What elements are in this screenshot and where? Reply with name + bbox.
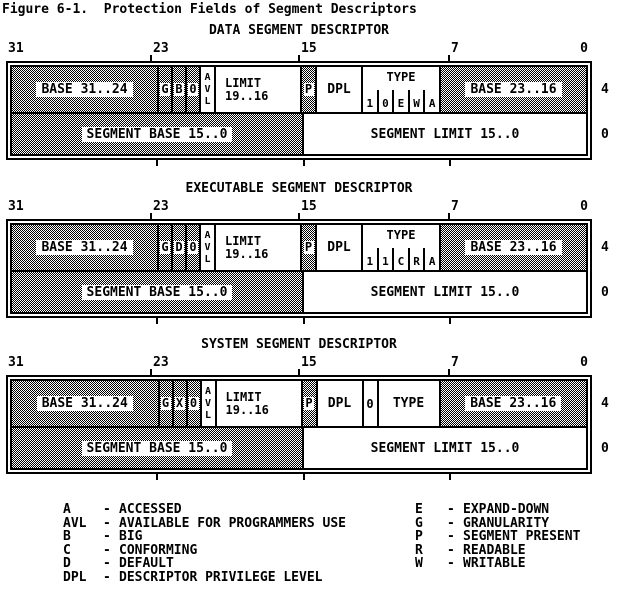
bit-ruler: 31 23 15 7 0 — [6, 43, 592, 62]
descriptor-row-offset-0: SEGMENT BASE 15..0 SEGMENT LIMIT 15..0 — [12, 270, 586, 312]
box-tick — [303, 318, 305, 324]
field-g-bit: G — [158, 381, 172, 426]
descriptor-row-offset-4: BASE 31..24 G D 0 A V L LIMIT 19..16 P D… — [12, 225, 586, 270]
type-bit: 1 — [363, 242, 377, 270]
descriptor-table: BASE 31..24 G X 0 A V L LIMIT 19..16 P D… — [6, 375, 592, 474]
field-g-bit: G — [157, 67, 171, 112]
section-title: DATA SEGMENT DESCRIPTOR — [0, 23, 598, 38]
legend-item-d: D-DEFAULT — [63, 557, 346, 571]
bit-label-15: 15 — [301, 357, 317, 369]
type-bit: A — [423, 248, 439, 270]
field-limit-19-16: LIMIT 19..16 — [214, 225, 300, 270]
bit-label-0: 0 — [580, 357, 588, 369]
legend-column-right: E-EXPAND-DOWN G-GRANULARITY P-SEGMENT PR… — [415, 503, 580, 571]
field-b-bit: B — [171, 67, 185, 112]
field-segment-base-15-0: SEGMENT BASE 15..0 — [12, 272, 302, 312]
descriptor-row-offset-0: SEGMENT BASE 15..0 SEGMENT LIMIT 15..0 — [12, 426, 586, 468]
figure-title: Figure 6-1. Protection Fields of Segment… — [2, 2, 417, 17]
field-segment-base-15-0: SEGMENT BASE 15..0 — [12, 114, 302, 154]
bit-label-23: 23 — [153, 43, 169, 55]
type-bit: 1 — [363, 84, 377, 112]
field-dpl: DPL — [315, 67, 361, 112]
byte-offset-0: 0 — [601, 441, 609, 456]
box-tick — [449, 474, 451, 480]
field-segment-base-15-0: SEGMENT BASE 15..0 — [12, 428, 302, 468]
descriptor-table: BASE 31..24 G B 0 A V L LIMIT 19..16 P D… — [6, 61, 592, 160]
field-base-23-16: BASE 23..16 — [439, 225, 586, 270]
box-tick — [449, 318, 451, 324]
byte-offset-4: 4 — [601, 82, 609, 97]
legend-item-b: B-BIG — [63, 530, 346, 544]
bit-label-31: 31 — [8, 43, 24, 55]
field-type: TYPE — [377, 381, 439, 426]
field-d-bit: D — [171, 225, 185, 270]
descriptor-row-offset-0: SEGMENT BASE 15..0 SEGMENT LIMIT 15..0 — [12, 112, 586, 154]
field-segment-limit-15-0: SEGMENT LIMIT 15..0 — [302, 114, 586, 154]
field-type: TYPE 1 1 C R A — [361, 225, 439, 270]
legend-item-dpl: DPL-DESCRIPTOR PRIVILEGE LEVEL — [63, 571, 346, 585]
field-segment-limit-15-0: SEGMENT LIMIT 15..0 — [302, 428, 586, 468]
bit-ruler: 31 23 15 7 0 — [6, 357, 592, 376]
field-base-31-24: BASE 31..24 — [12, 67, 157, 112]
box-tick — [303, 474, 305, 480]
field-zero-bit: 0 — [185, 67, 199, 112]
bit-label-15: 15 — [301, 43, 317, 55]
field-dpl: DPL — [316, 381, 362, 426]
descriptor-table: BASE 31..24 G D 0 A V L LIMIT 19..16 P D… — [6, 219, 592, 318]
bit-label-0: 0 — [580, 43, 588, 55]
legend-item-a: A-ACCESSED — [63, 503, 346, 517]
bit-label-15: 15 — [301, 201, 317, 213]
bit-label-0: 0 — [580, 201, 588, 213]
field-zero-bit: 0 — [186, 381, 200, 426]
byte-offset-4: 4 — [601, 396, 609, 411]
box-tick — [156, 160, 158, 166]
field-base-23-16: BASE 23..16 — [439, 67, 586, 112]
type-bit: R — [408, 248, 424, 270]
type-bit: W — [408, 90, 424, 112]
section-title: EXECUTABLE SEGMENT DESCRIPTOR — [0, 181, 598, 196]
field-type: TYPE 1 0 E W A — [361, 67, 439, 112]
descriptor-table-inner: BASE 31..24 G B 0 A V L LIMIT 19..16 P D… — [10, 65, 588, 156]
legend-column-left: A-ACCESSED AVL-AVAILABLE FOR PROGRAMMERS… — [63, 503, 346, 584]
type-bit: 1 — [377, 248, 393, 270]
type-bit: 0 — [377, 90, 393, 112]
bit-label-23: 23 — [153, 357, 169, 369]
legend-item-e: E-EXPAND-DOWN — [415, 503, 580, 517]
field-limit-19-16: LIMIT 19..16 — [214, 67, 300, 112]
box-tick — [303, 160, 305, 166]
byte-offset-4: 4 — [601, 240, 609, 255]
byte-offset-0: 0 — [601, 127, 609, 142]
field-p-bit: P — [300, 67, 315, 112]
field-avl: A V L — [199, 67, 214, 112]
field-base-31-24: BASE 31..24 — [12, 381, 158, 426]
type-bit: E — [392, 90, 408, 112]
bit-label-7: 7 — [451, 357, 459, 369]
field-zero: 0 — [362, 381, 377, 426]
field-avl: A V L — [199, 225, 214, 270]
type-bit: C — [392, 248, 408, 270]
bit-label-7: 7 — [451, 43, 459, 55]
descriptor-row-offset-4: BASE 31..24 G X 0 A V L LIMIT 19..16 P D… — [12, 381, 586, 426]
figure-page: Figure 6-1. Protection Fields of Segment… — [0, 0, 640, 600]
legend-item-c: C-CONFORMING — [63, 544, 346, 558]
descriptor-table-inner: BASE 31..24 G X 0 A V L LIMIT 19..16 P D… — [10, 379, 588, 470]
executable-segment-descriptor-section: EXECUTABLE SEGMENT DESCRIPTOR 31 23 15 7… — [0, 181, 640, 331]
field-p-bit: P — [300, 225, 315, 270]
legend-item-w: W-WRITABLE — [415, 557, 580, 571]
bit-label-7: 7 — [451, 201, 459, 213]
section-title: SYSTEM SEGMENT DESCRIPTOR — [0, 337, 598, 352]
type-bit-row: 1 0 E W A — [363, 84, 439, 112]
field-base-23-16: BASE 23..16 — [439, 381, 587, 426]
legend-item-r: R-READABLE — [415, 544, 580, 558]
box-tick — [156, 318, 158, 324]
field-zero-bit: 0 — [185, 225, 199, 270]
field-g-bit: G — [157, 225, 171, 270]
data-segment-descriptor-section: DATA SEGMENT DESCRIPTOR 31 23 15 7 0 BAS… — [0, 23, 640, 173]
bit-label-23: 23 — [153, 201, 169, 213]
field-dpl: DPL — [315, 225, 361, 270]
field-limit-19-16: LIMIT 19..16 — [215, 381, 301, 426]
bit-label-31: 31 — [8, 201, 24, 213]
descriptor-table-inner: BASE 31..24 G D 0 A V L LIMIT 19..16 P D… — [10, 223, 588, 314]
system-segment-descriptor-section: SYSTEM SEGMENT DESCRIPTOR 31 23 15 7 0 B… — [0, 337, 640, 487]
field-p-bit: P — [301, 381, 316, 426]
legend-item-avl: AVL-AVAILABLE FOR PROGRAMMERS USE — [63, 517, 346, 531]
legend-item-p: P-SEGMENT PRESENT — [415, 530, 580, 544]
box-tick — [156, 474, 158, 480]
field-segment-limit-15-0: SEGMENT LIMIT 15..0 — [302, 272, 586, 312]
bit-label-31: 31 — [8, 357, 24, 369]
legend-item-g: G-GRANULARITY — [415, 517, 580, 531]
field-x-bit: X — [172, 381, 186, 426]
field-avl: A V L — [200, 381, 215, 426]
type-bit-row: 1 1 C R A — [363, 242, 439, 270]
bit-ruler: 31 23 15 7 0 — [6, 201, 592, 220]
descriptor-row-offset-4: BASE 31..24 G B 0 A V L LIMIT 19..16 P D… — [12, 67, 586, 112]
field-base-31-24: BASE 31..24 — [12, 225, 157, 270]
byte-offset-0: 0 — [601, 285, 609, 300]
box-tick — [449, 160, 451, 166]
type-bit: A — [423, 90, 439, 112]
